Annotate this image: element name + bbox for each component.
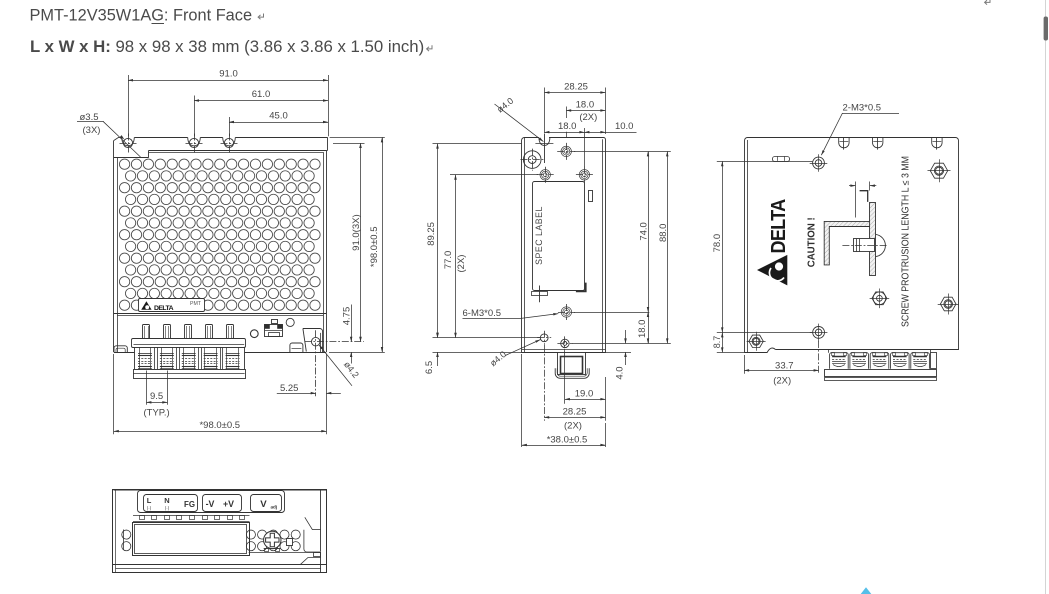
svg-text:18.0: 18.0: [576, 99, 595, 110]
svg-text:SCREW PROTRUSION LENGTH L ≤ 3: SCREW PROTRUSION LENGTH L ≤ 3 MM: [901, 156, 912, 327]
svg-text:19.0: 19.0: [575, 389, 594, 400]
svg-text:5.25: 5.25: [280, 383, 299, 394]
svg-text:(2X): (2X): [564, 421, 582, 432]
svg-text:45.0: 45.0: [269, 111, 288, 122]
svg-text:4.0: 4.0: [614, 366, 625, 379]
svg-text:(2X): (2X): [579, 112, 597, 123]
svg-text:74.0: 74.0: [639, 222, 650, 241]
svg-text:SPEC LABEL: SPEC LABEL: [534, 206, 544, 265]
svg-text:+V: +V: [223, 499, 234, 509]
svg-text:6-M3*0.5: 6-M3*0.5: [463, 308, 502, 319]
svg-text:91.0(3X): 91.0(3X): [351, 214, 362, 250]
svg-text:DELTA: DELTA: [154, 305, 174, 312]
svg-text:adj: adj: [271, 505, 278, 510]
svg-text:6.5: 6.5: [424, 361, 435, 374]
svg-text:33.7: 33.7: [775, 361, 794, 372]
svg-text:(TYP.): (TYP.): [143, 408, 169, 419]
svg-text:CAUTION !: CAUTION !: [806, 217, 818, 267]
svg-text:88.0: 88.0: [658, 224, 669, 243]
svg-text:78.0: 78.0: [712, 234, 723, 253]
svg-text:8.7: 8.7: [712, 336, 722, 349]
svg-text:28.25: 28.25: [563, 407, 587, 418]
svg-text:FG: FG: [184, 499, 195, 509]
svg-text:N: N: [164, 496, 169, 505]
svg-text:*98.0±0.5: *98.0±0.5: [199, 420, 240, 431]
svg-text:10.0: 10.0: [615, 121, 634, 132]
svg-text:DELTA: DELTA: [768, 199, 790, 253]
svg-text:9.5: 9.5: [150, 391, 163, 402]
svg-text:*38.0±0.5: *38.0±0.5: [547, 434, 588, 445]
svg-text:(·): (·): [147, 506, 152, 511]
svg-text:61.0: 61.0: [252, 89, 271, 100]
svg-text:91.0: 91.0: [219, 69, 238, 80]
svg-text:(2X): (2X): [456, 255, 467, 273]
svg-text:*98.0±0.5: *98.0±0.5: [369, 226, 380, 267]
svg-text:77.0: 77.0: [443, 251, 454, 270]
svg-text:89.25: 89.25: [426, 222, 437, 246]
svg-text:2-M3*0.5: 2-M3*0.5: [843, 103, 882, 114]
svg-text:(2X): (2X): [773, 375, 791, 386]
svg-text:28.25: 28.25: [564, 81, 588, 92]
svg-text:PMT: PMT: [190, 301, 202, 307]
svg-text:18.0: 18.0: [558, 121, 577, 132]
svg-text:18.0: 18.0: [637, 320, 648, 339]
svg-text:-V: -V: [206, 499, 215, 509]
svg-text:(·): (·): [165, 506, 170, 511]
svg-text:PMT-12V35W1AG: Front Face: PMT-12V35W1AG: Front Face: [30, 7, 253, 25]
svg-text:4.75: 4.75: [342, 307, 353, 326]
svg-text:L: L: [147, 496, 152, 505]
svg-text:V: V: [260, 499, 267, 510]
svg-text:(3X): (3X): [83, 125, 101, 136]
svg-text:L x W x H: 98 x 98 x 38 mm (3.: L x W x H: 98 x 98 x 38 mm (3.86 x 3.86 …: [30, 37, 424, 56]
